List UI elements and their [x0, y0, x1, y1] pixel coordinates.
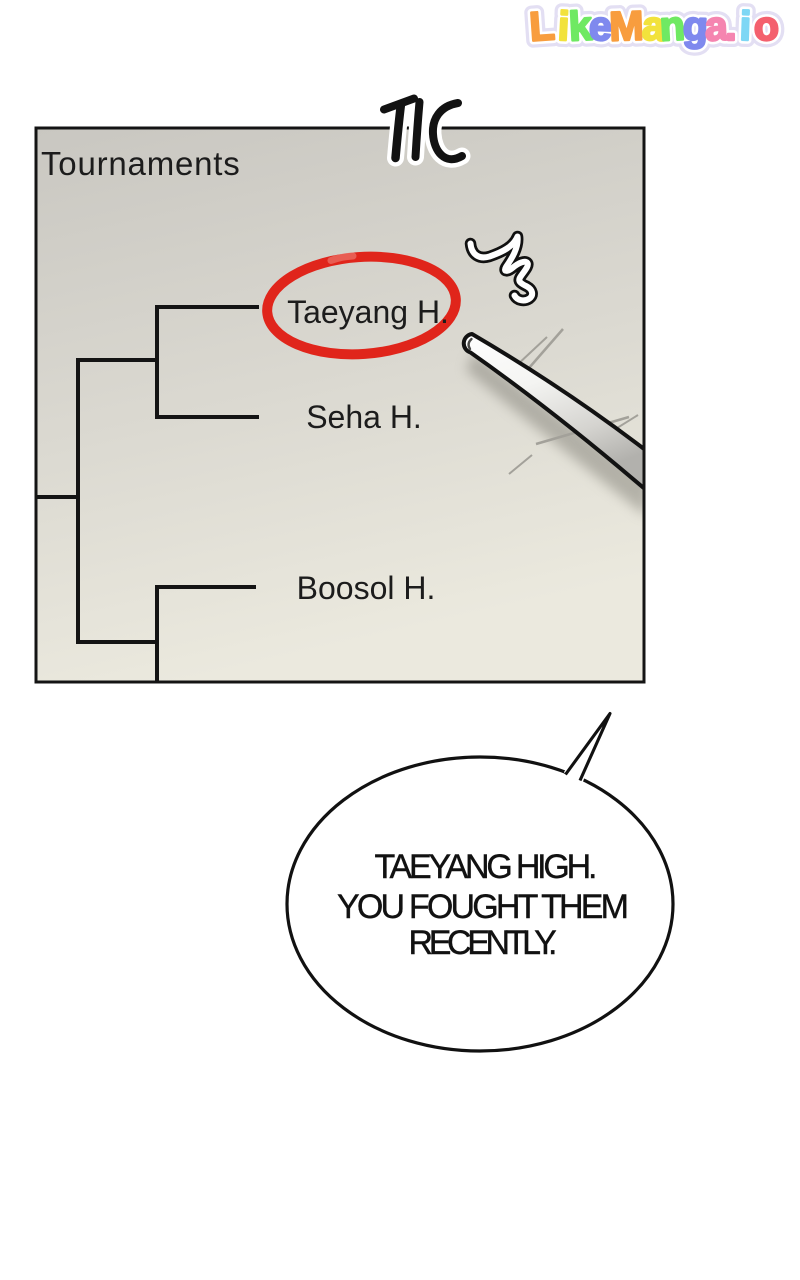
svg-text:.: . — [725, 3, 736, 49]
svg-text:o: o — [753, 2, 780, 49]
svg-text:Taeyang H.: Taeyang H. — [287, 294, 449, 330]
svg-text:i: i — [739, 3, 752, 49]
svg-text:TAEYANG HIGH.: TAEYANG HIGH. — [375, 848, 598, 886]
svg-text:M: M — [609, 2, 645, 49]
svg-text:RECENTLY.: RECENTLY. — [409, 924, 558, 962]
svg-text:Boosol H.: Boosol H. — [297, 570, 436, 606]
svg-text:L: L — [528, 2, 556, 50]
svg-text:Tournaments: Tournaments — [41, 145, 241, 182]
svg-text:YOU FOUGHT THEM: YOU FOUGHT THEM — [337, 888, 629, 926]
svg-text:Seha H.: Seha H. — [306, 399, 422, 435]
